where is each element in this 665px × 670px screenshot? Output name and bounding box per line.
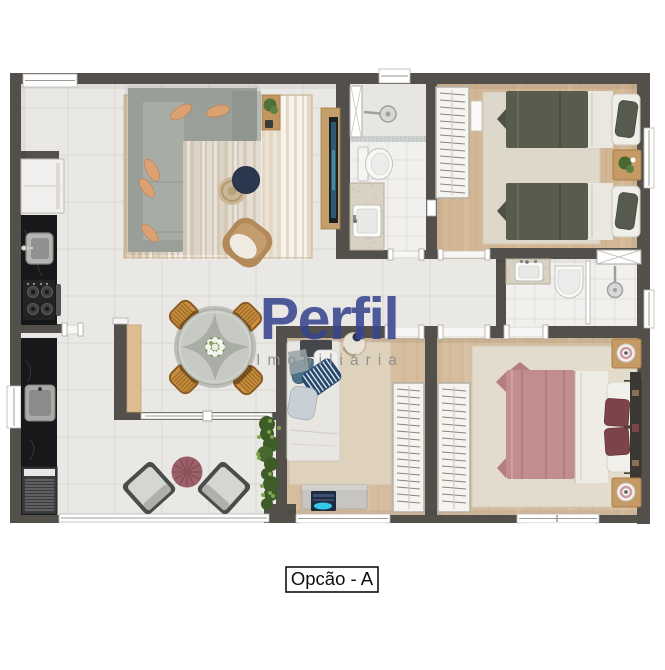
svg-text:Imobiliária: Imobiliária xyxy=(256,352,404,369)
svg-text:Perfil: Perfil xyxy=(260,286,399,352)
svg-text:Opcão - A: Opcão - A xyxy=(291,568,374,589)
